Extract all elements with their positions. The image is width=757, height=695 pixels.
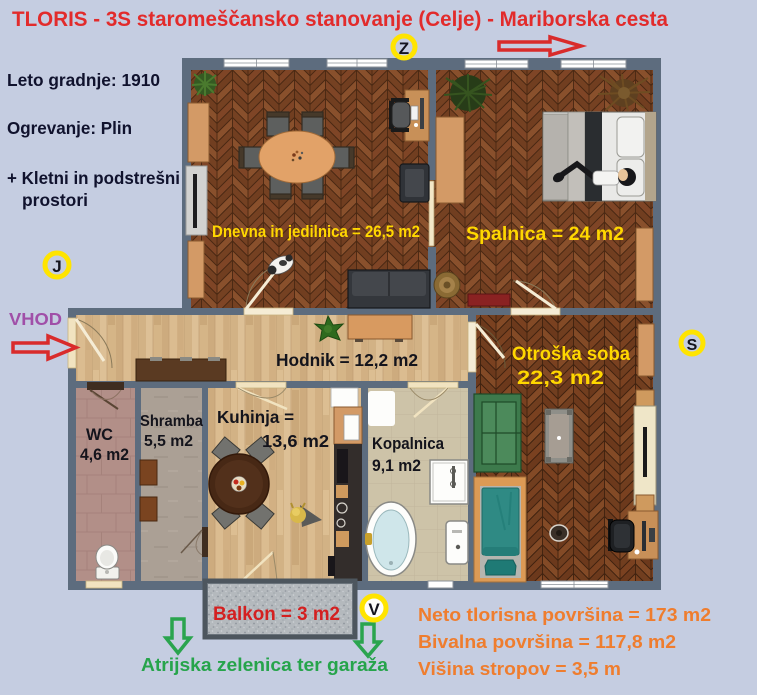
svg-text:TLORIS - 3S staromeščansko sta: TLORIS - 3S staromeščansko stanovanje (C… xyxy=(12,8,668,31)
svg-text:Neto tlorisna površina = 173 m: Neto tlorisna površina = 173 m2 xyxy=(418,605,711,625)
svg-text:WC: WC xyxy=(86,425,113,444)
svg-text:V: V xyxy=(368,600,380,619)
svg-text:prostori: prostori xyxy=(22,190,88,210)
svg-text:Shramba: Shramba xyxy=(140,413,203,430)
svg-text:22,3 m2: 22,3 m2 xyxy=(517,368,604,389)
svg-text:Balkon = 3 m2: Balkon = 3 m2 xyxy=(213,603,340,625)
svg-text:4,6 m2: 4,6 m2 xyxy=(80,445,129,464)
svg-text:Atrijska zelenica ter garaža: Atrijska zelenica ter garaža xyxy=(141,655,389,675)
svg-text:5,5 m2: 5,5 m2 xyxy=(144,433,193,450)
svg-text:Spalnica = 24 m2: Spalnica = 24 m2 xyxy=(466,224,624,245)
svg-text:VHOD: VHOD xyxy=(9,309,62,329)
svg-text:Bivalna površina = 117,8 m2: Bivalna površina = 117,8 m2 xyxy=(418,632,676,652)
svg-text:+ Kletni in podstrešni: + Kletni in podstrešni xyxy=(7,168,180,188)
svg-text:13,6 m2: 13,6 m2 xyxy=(262,431,329,451)
svg-text:Dnevna in jedilnica = 26,5 m2: Dnevna in jedilnica = 26,5 m2 xyxy=(212,223,420,241)
svg-text:Ogrevanje: Plin: Ogrevanje: Plin xyxy=(7,118,132,138)
svg-text:Z: Z xyxy=(399,39,409,58)
svg-text:Leto gradnje: 1910: Leto gradnje: 1910 xyxy=(7,70,160,90)
svg-text:J: J xyxy=(52,257,61,276)
svg-text:Hodnik = 12,2 m2: Hodnik = 12,2 m2 xyxy=(276,350,418,370)
svg-text:Višina stropov = 3,5 m: Višina stropov = 3,5 m xyxy=(418,659,621,679)
svg-text:9,1 m2: 9,1 m2 xyxy=(372,457,421,475)
svg-text:Kopalnica: Kopalnica xyxy=(372,435,445,453)
svg-text:Kuhinja =: Kuhinja = xyxy=(217,407,294,427)
svg-text:Otroška soba: Otroška soba xyxy=(512,344,630,365)
svg-text:S: S xyxy=(687,337,698,354)
